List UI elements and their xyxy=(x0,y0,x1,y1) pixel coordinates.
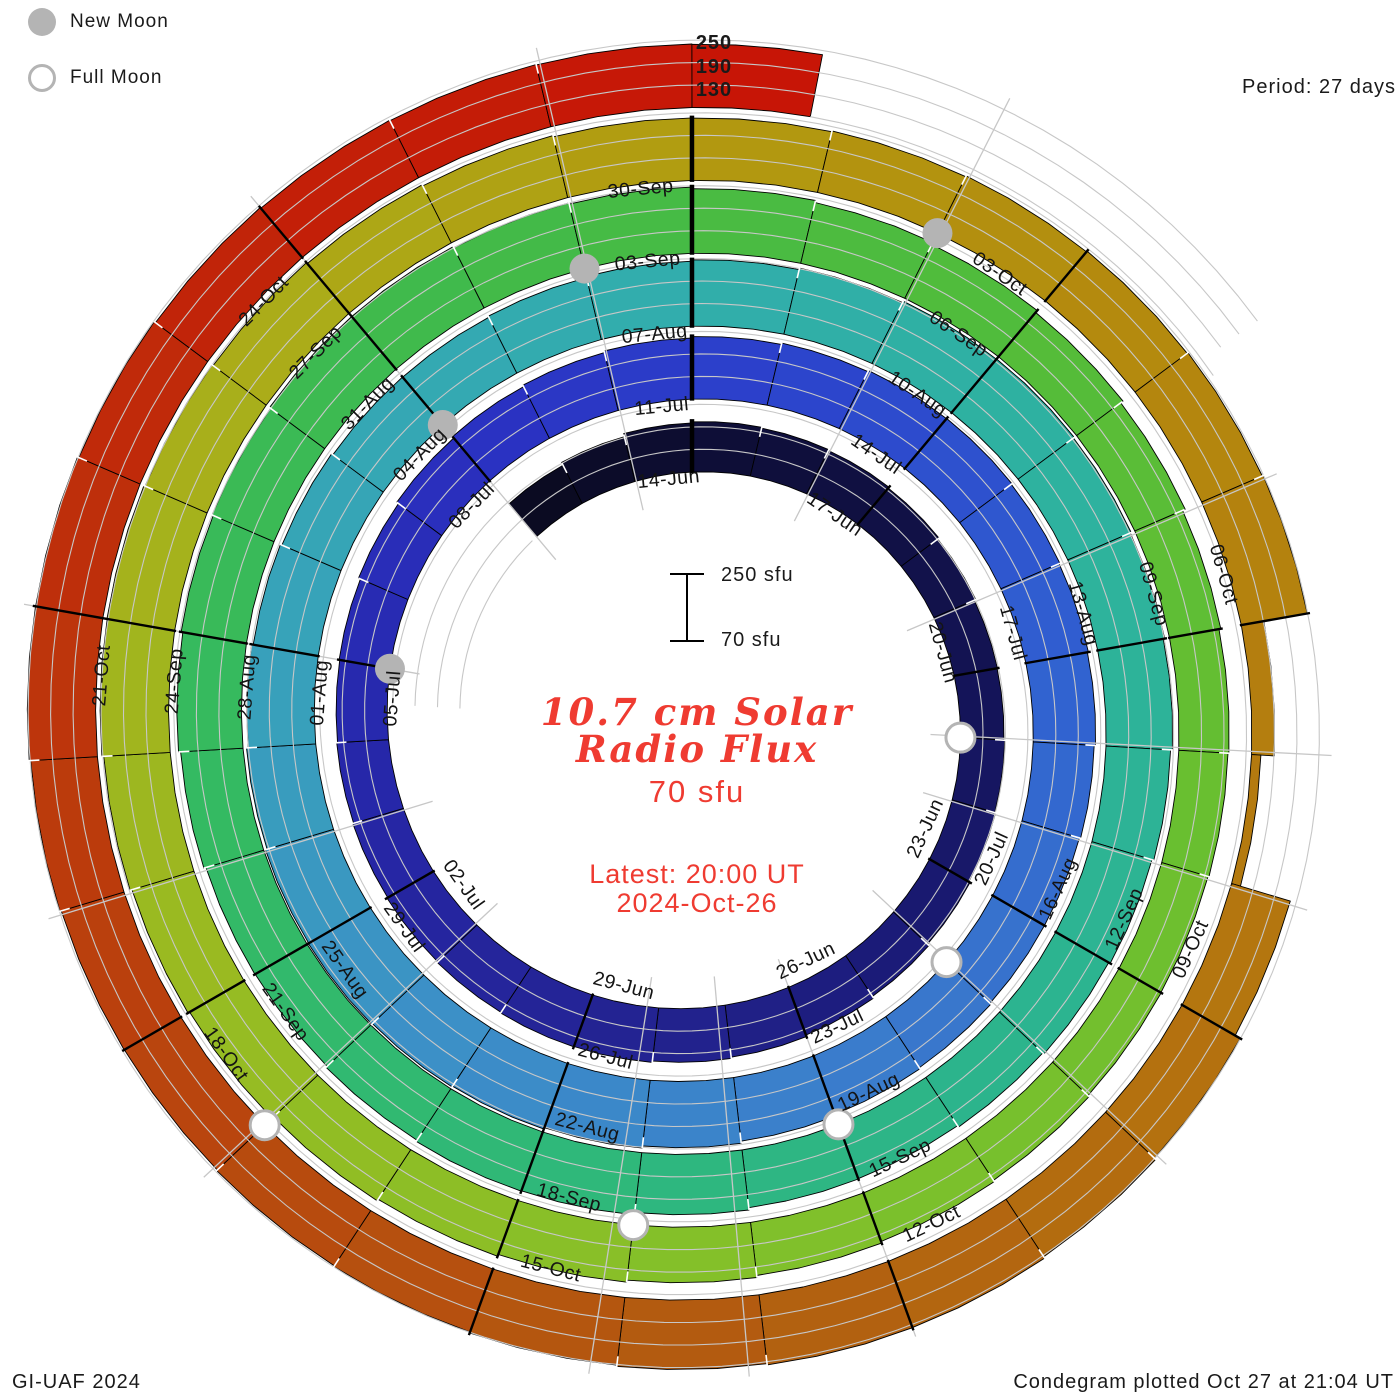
chart-title-line2: Radio Flux xyxy=(397,731,997,768)
spiral-day-cell xyxy=(692,337,782,406)
new-moon-icon xyxy=(28,8,56,36)
credit-label: GI-UAF 2024 xyxy=(12,1371,141,1394)
spiral-day-cell xyxy=(692,189,816,264)
day-tick xyxy=(1085,745,1096,746)
date-label: 01-Aug xyxy=(306,659,333,726)
gridline-130 xyxy=(460,541,533,709)
latest-time-label: Latest: 20:00 UT xyxy=(397,860,997,890)
moon-marker-new xyxy=(570,254,600,284)
radial-scale-190: 190 xyxy=(684,56,744,79)
day-tick xyxy=(246,747,257,748)
scalebar-top-label: 250 sfu xyxy=(721,564,794,587)
latest-date-label: 2024-Oct-26 xyxy=(397,889,997,919)
spiral-day-cell xyxy=(1026,652,1096,745)
day-tick xyxy=(28,760,39,761)
spiral-day-cell xyxy=(617,1295,767,1370)
legend-new-moon: New Moon xyxy=(28,8,169,36)
spiral-day-cell xyxy=(247,744,334,849)
date-label: 11-Jul xyxy=(633,393,690,420)
moon-marker-new xyxy=(922,218,952,248)
date-label: 14-Jun xyxy=(636,465,700,493)
spiral-day-cell xyxy=(1170,629,1229,753)
full-moon-label: Full Moon xyxy=(70,67,162,89)
current-flux-value: 70 sfu xyxy=(397,774,997,810)
day-tick xyxy=(178,751,189,752)
spiral-day-cell xyxy=(337,740,404,824)
legend-full-moon: Full Moon xyxy=(28,64,162,92)
condegram-page: 14-Jun17-Jun20-Jun23-Jun26-Jun29-Jun02-J… xyxy=(0,0,1400,1400)
day-tick xyxy=(102,756,113,757)
spiral-day-cell xyxy=(751,1193,882,1276)
full-moon-icon xyxy=(28,64,56,92)
moon-marker-full xyxy=(250,1111,279,1140)
spiral-day-cell xyxy=(1232,755,1261,887)
spiral-day-cell xyxy=(1098,639,1173,750)
spiral-day-cell xyxy=(692,118,832,192)
period-label: Period: 27 days xyxy=(1242,76,1396,99)
radial-scale-130: 130 xyxy=(684,79,744,102)
spiral-day-cell xyxy=(759,1261,913,1365)
day-tick xyxy=(335,742,346,743)
moon-marker-full xyxy=(824,1110,853,1139)
moon-marker-full xyxy=(932,948,961,977)
day-tick xyxy=(1162,749,1173,750)
moon-marker-full xyxy=(619,1211,648,1240)
spiral-day-cell xyxy=(1092,746,1171,860)
chart-title-line1: 10.7 cm Solar xyxy=(397,694,997,731)
spiral-day-cell xyxy=(692,260,799,334)
new-moon-label: New Moon xyxy=(70,11,169,33)
day-tick xyxy=(1219,753,1230,754)
scalebar-bottom-label: 70 sfu xyxy=(721,629,781,652)
plotted-timestamp: Condegram plotted Oct 27 at 21:04 UT xyxy=(1013,1371,1394,1394)
radial-scale-250: 250 xyxy=(684,32,744,55)
